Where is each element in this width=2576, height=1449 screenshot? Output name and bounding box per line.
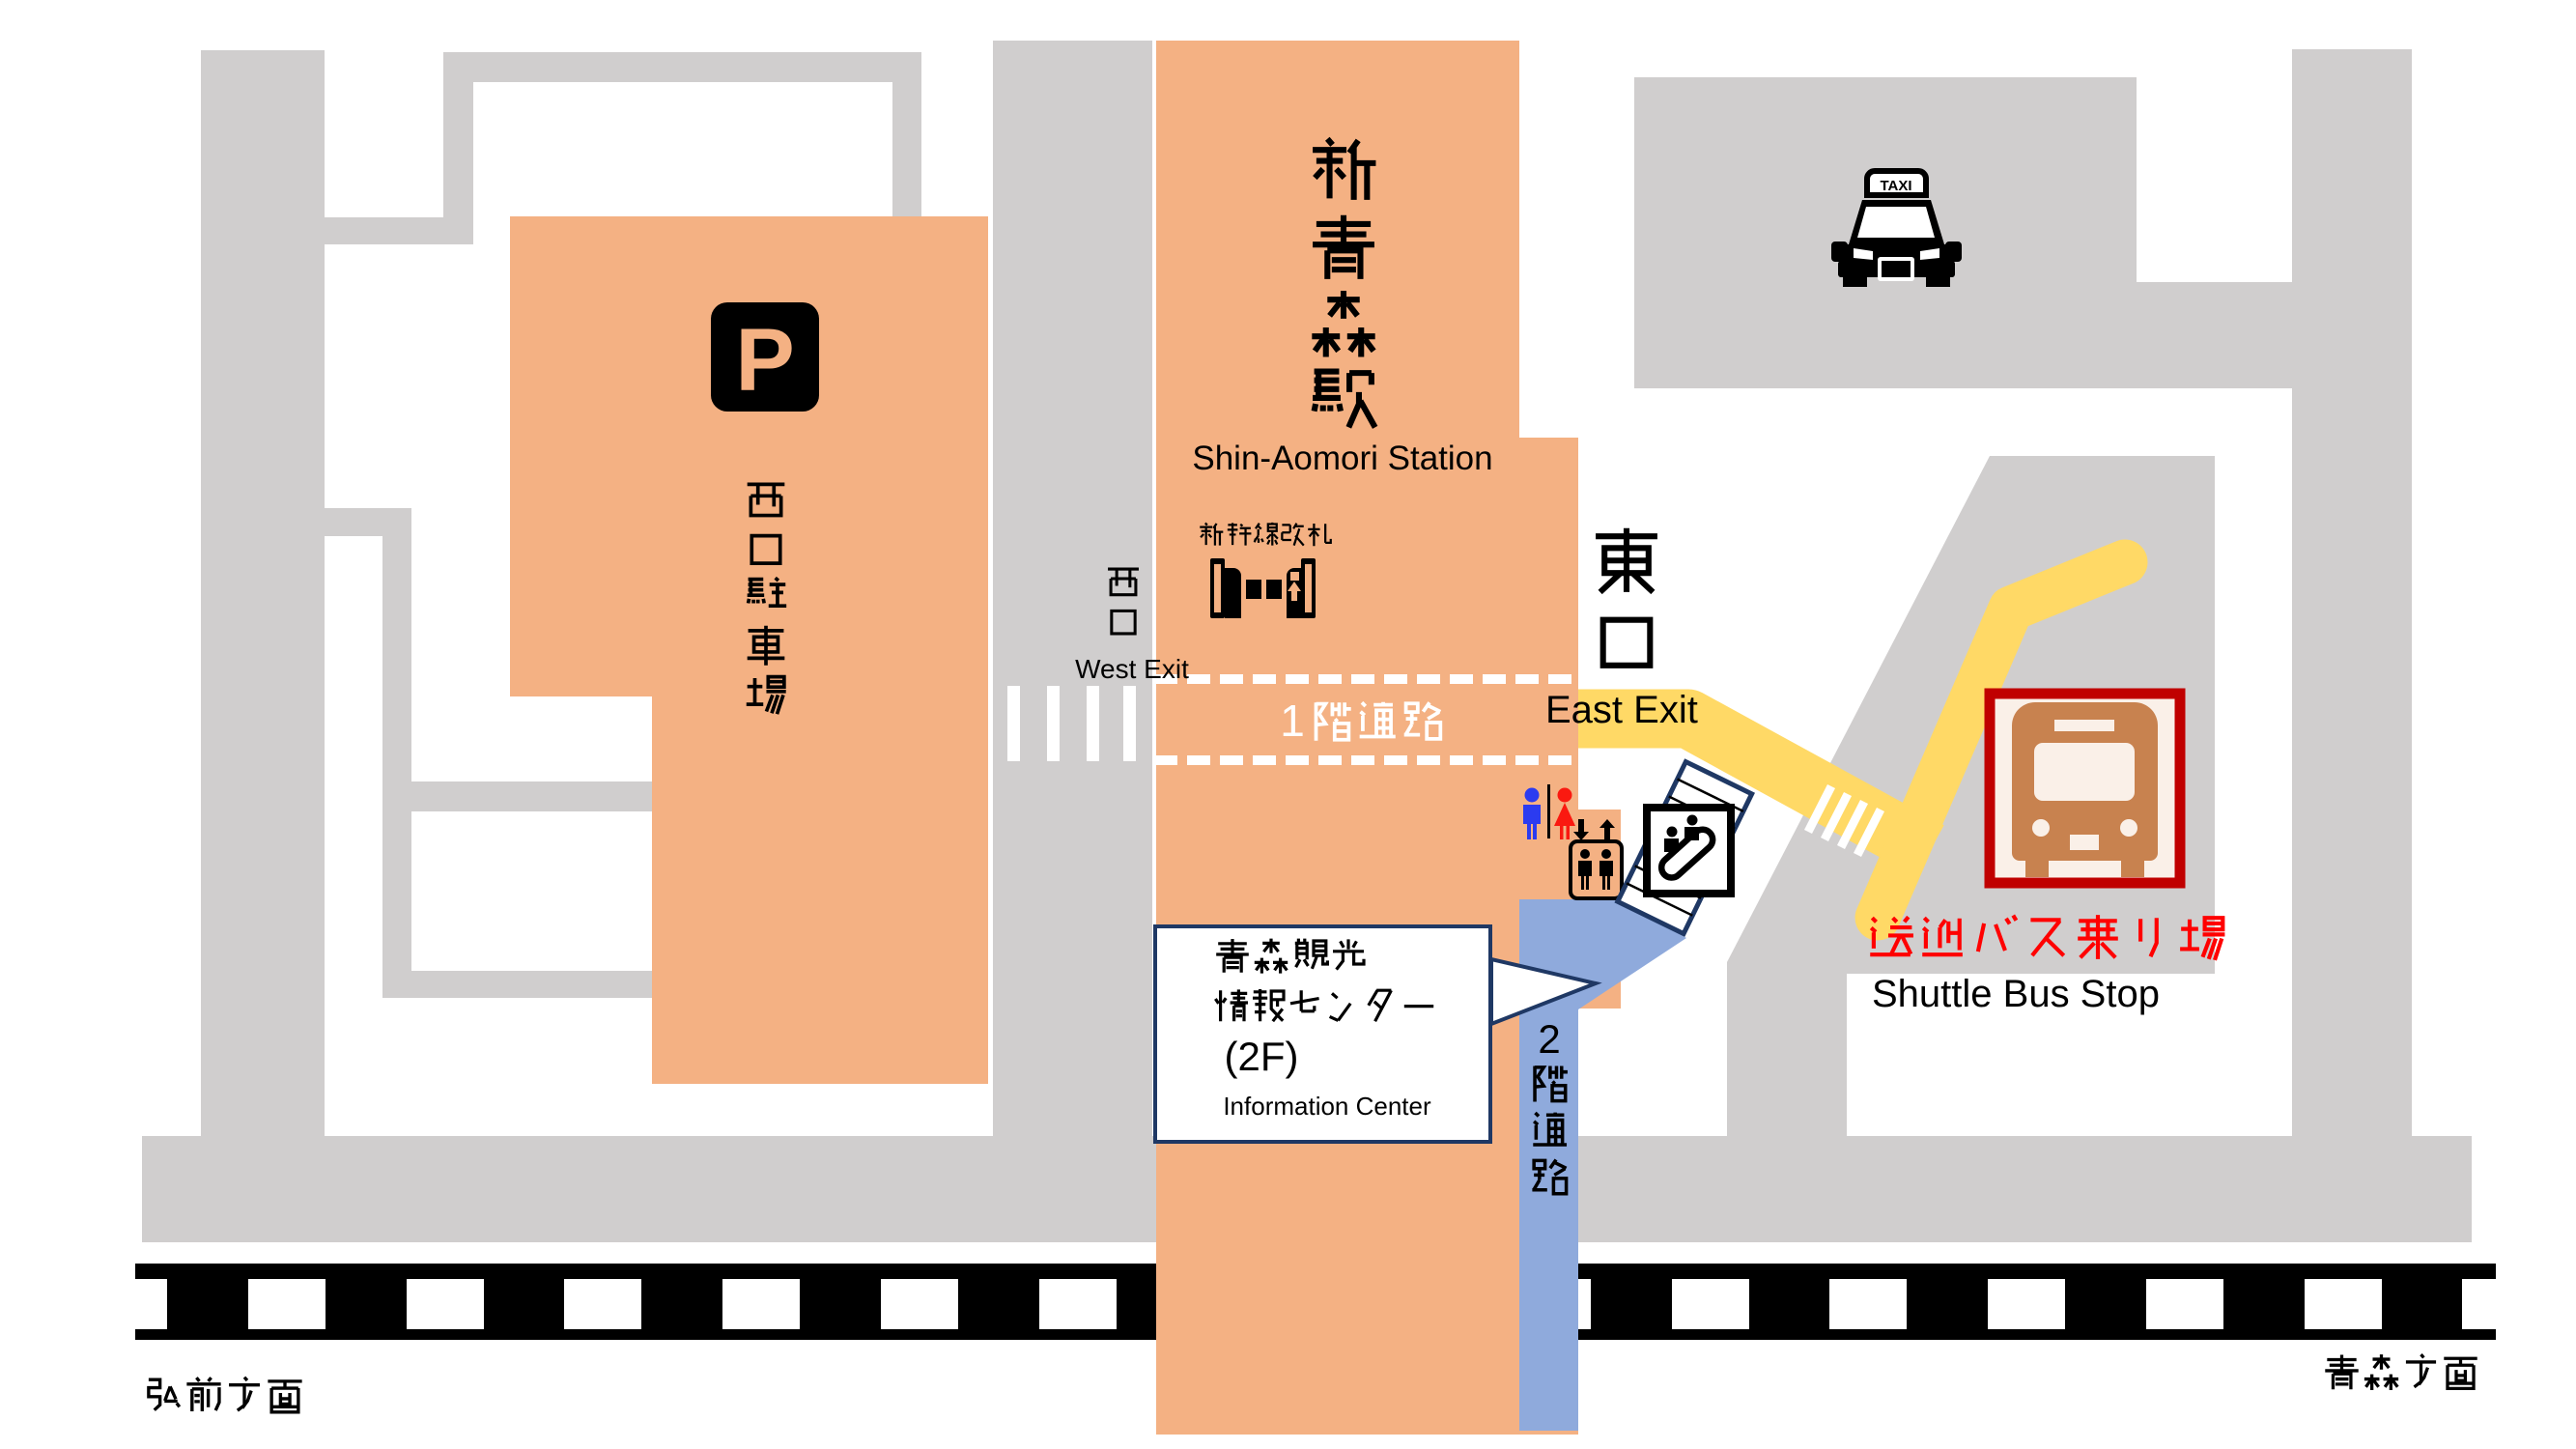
svg-text:2: 2 bbox=[1538, 1016, 1560, 1062]
svg-text:Information Center: Information Center bbox=[1223, 1092, 1431, 1121]
svg-text:West Exit: West Exit bbox=[1075, 654, 1189, 684]
svg-text:P: P bbox=[735, 311, 794, 410]
svg-text:East Exit: East Exit bbox=[1545, 689, 1698, 731]
svg-text:Shuttle Bus Stop: Shuttle Bus Stop bbox=[1872, 973, 2160, 1015]
svg-text:(2F): (2F) bbox=[1225, 1034, 1299, 1079]
svg-text:Shin-Aomori Station: Shin-Aomori Station bbox=[1192, 440, 1492, 477]
svg-text:1: 1 bbox=[1280, 696, 1305, 746]
svg-text:TAXI: TAXI bbox=[1880, 178, 1911, 194]
